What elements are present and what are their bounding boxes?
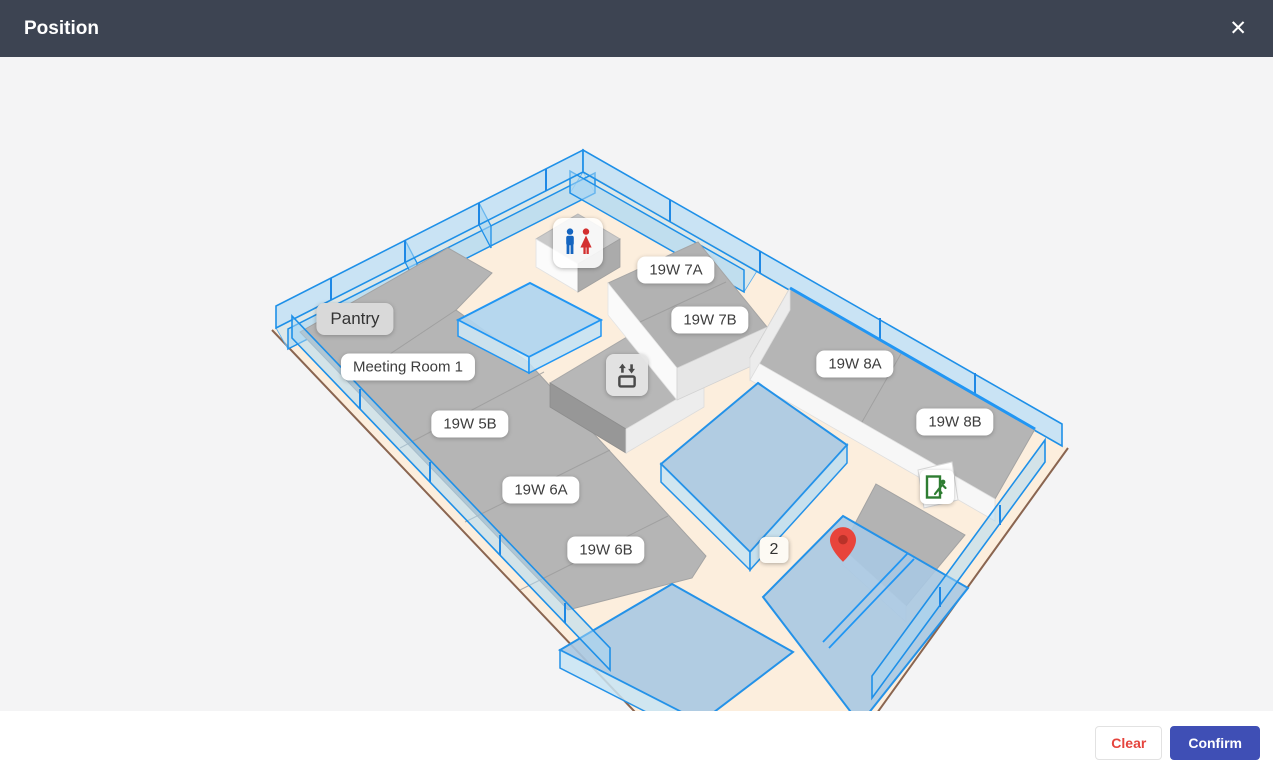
position-modal: Position ✕ xyxy=(0,0,1273,774)
floorplan-canvas[interactable]: Pantry Meeting Room 1 19W 5B 19W 6A 19W … xyxy=(0,57,1273,711)
room-label-19w-6b: 19W 6B xyxy=(567,537,644,564)
room-label-19w-8a: 19W 8A xyxy=(816,351,893,378)
location-pin-glyph xyxy=(830,527,856,562)
room-label-pantry: Pantry xyxy=(316,303,393,335)
modal-footer: Clear Confirm xyxy=(0,711,1273,774)
restroom-glyph xyxy=(561,228,595,258)
room-label-19w-6a: 19W 6A xyxy=(502,477,579,504)
location-pin-icon[interactable] xyxy=(830,527,856,562)
confirm-button[interactable]: Confirm xyxy=(1170,726,1260,760)
modal-title: Position xyxy=(24,18,1219,40)
room-label-19w-7b: 19W 7B xyxy=(671,307,748,334)
room-label-19w-8b: 19W 8B xyxy=(916,409,993,436)
elevator-glyph xyxy=(611,359,643,391)
close-icon: ✕ xyxy=(1229,17,1247,40)
elevator-icon xyxy=(606,354,648,396)
floor-marker-badge: 2 xyxy=(760,537,789,563)
restroom-icon xyxy=(553,218,603,268)
room-label-meeting-room-1: Meeting Room 1 xyxy=(341,354,475,381)
exit-glyph xyxy=(924,474,950,500)
emergency-exit-icon xyxy=(920,470,954,504)
room-label-19w-5b: 19W 5B xyxy=(431,411,508,438)
room-label-19w-7a: 19W 7A xyxy=(637,257,714,284)
modal-header: Position ✕ xyxy=(0,0,1273,57)
close-button[interactable]: ✕ xyxy=(1219,12,1257,45)
clear-button[interactable]: Clear xyxy=(1095,726,1162,760)
